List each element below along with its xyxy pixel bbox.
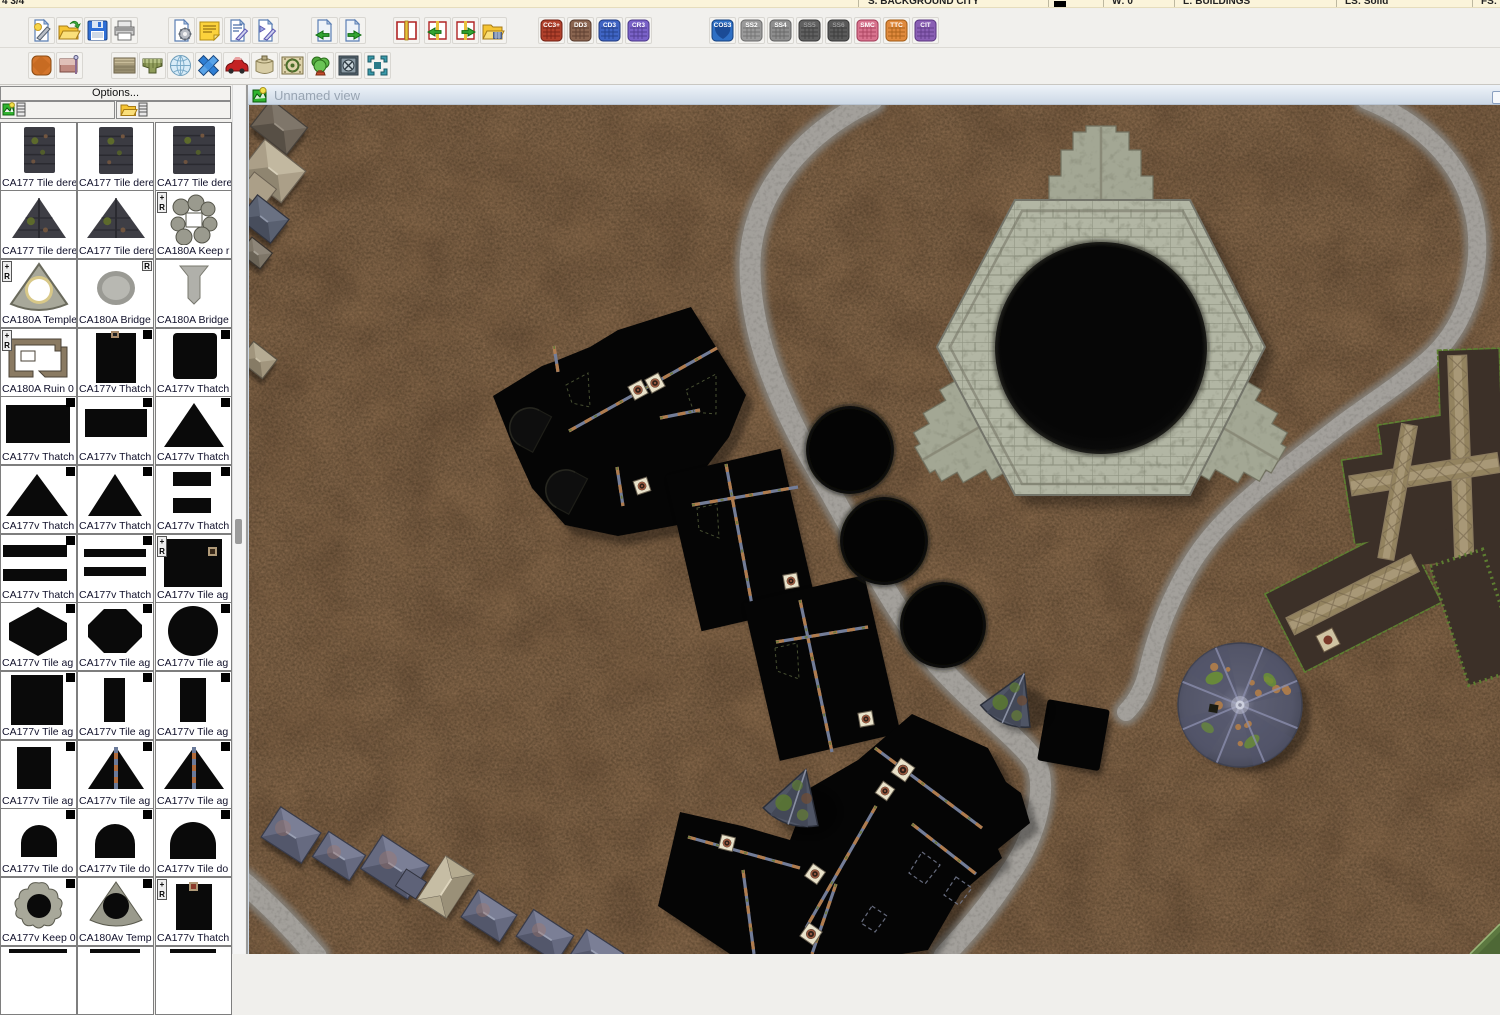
svg-text:CD3: CD3 xyxy=(603,22,616,29)
svg-text:SS4: SS4 xyxy=(774,22,787,29)
svg-text:SS2: SS2 xyxy=(745,22,758,29)
svg-text:CIT: CIT xyxy=(920,22,931,29)
svg-text:TTC: TTC xyxy=(890,22,903,29)
svg-text:SS5: SS5 xyxy=(803,22,816,29)
svg-text:SS6: SS6 xyxy=(832,22,845,29)
svg-text:COS3: COS3 xyxy=(714,22,732,29)
svg-text:DD3: DD3 xyxy=(574,22,587,29)
svg-text:CR3: CR3 xyxy=(632,22,645,29)
svg-text:SMC: SMC xyxy=(860,22,875,29)
svg-text:CC3+: CC3+ xyxy=(543,22,560,29)
